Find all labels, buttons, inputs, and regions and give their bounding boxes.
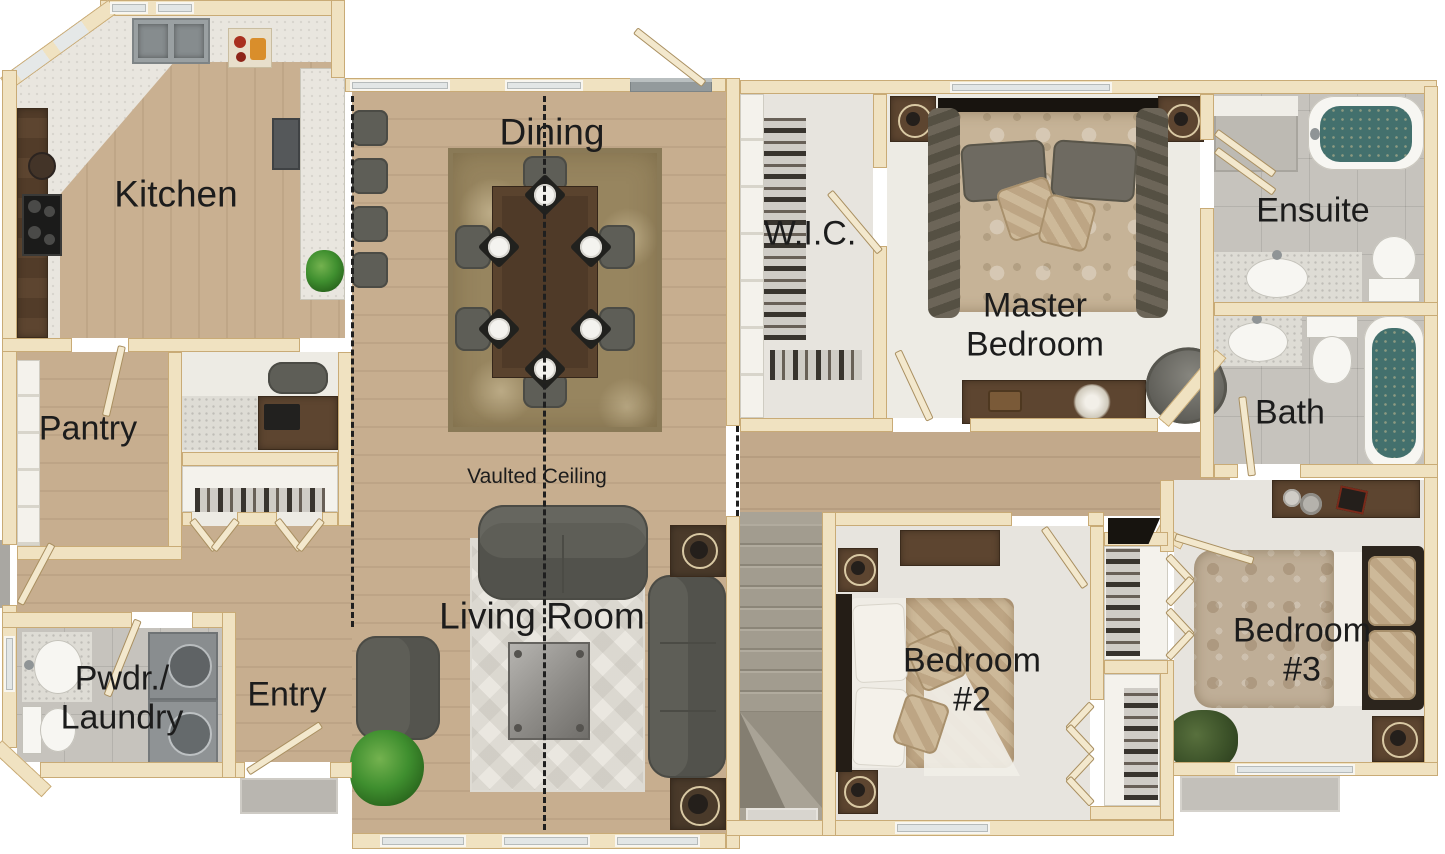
bed-drape: [1136, 108, 1168, 318]
window: [895, 822, 990, 834]
bar-stool: [352, 252, 388, 288]
sofa: [648, 575, 726, 778]
vaulted-ceiling-line: [543, 96, 546, 830]
room-label-kitchen: Kitchen: [114, 174, 237, 217]
room-label-dining: Dining: [500, 112, 605, 155]
sofa-cushion-line: [660, 710, 716, 712]
speaker-cone: [851, 783, 865, 797]
speaker-cone: [851, 561, 865, 575]
room-label-bath: Bath: [1255, 393, 1325, 432]
bedroom-hall-floor: [740, 432, 1230, 516]
window: [950, 82, 1112, 93]
wall: [237, 512, 277, 526]
burner: [44, 234, 55, 245]
window: [505, 80, 583, 91]
coat-closet-clothes: [195, 488, 325, 512]
burner: [28, 200, 41, 213]
bar-stool: [352, 158, 388, 194]
food-item: [234, 36, 246, 48]
dresser-plate: [1300, 493, 1322, 515]
room-label-pantry: Pantry: [39, 409, 137, 448]
pillow: [1050, 139, 1138, 203]
vaulted-ceiling-line: [736, 426, 739, 516]
wall: [970, 418, 1158, 432]
wall: [1200, 208, 1214, 478]
window: [110, 2, 148, 14]
wall: [1424, 86, 1438, 770]
speaker-cone: [906, 112, 920, 126]
wall: [1200, 94, 1214, 140]
faucet: [1272, 250, 1282, 260]
wall: [40, 762, 245, 778]
record: [688, 794, 708, 814]
ensuite-toilet-bowl: [1372, 236, 1416, 282]
wall: [2, 70, 17, 545]
wall: [330, 762, 352, 778]
wall: [726, 516, 740, 849]
ensuite-sink: [1246, 258, 1308, 298]
table-leg: [514, 724, 522, 732]
bar-stool: [352, 206, 388, 242]
wall: [873, 246, 887, 426]
wall: [873, 94, 887, 168]
room-label-pwdr-laundry: Pwdr./Laundry: [61, 660, 184, 739]
room-label-ensuite: Ensuite: [1256, 191, 1369, 230]
table-leg: [514, 650, 522, 658]
plate: [488, 236, 510, 258]
room-label-living-room: Living Room: [439, 596, 645, 639]
wall-oven: [272, 118, 300, 170]
wall: [128, 338, 300, 352]
wall: [822, 512, 1012, 526]
wall: [1214, 302, 1438, 316]
bath-toilet-bowl: [1312, 336, 1352, 384]
bedroom3-stoop: [1180, 776, 1340, 812]
window: [4, 636, 15, 692]
wall: [740, 418, 893, 432]
basket: [28, 152, 56, 180]
bedroom2-closet-clothes: [1124, 688, 1158, 800]
wall: [1088, 512, 1104, 526]
side-door-stoop: [0, 540, 10, 608]
bedroom2-dresser: [900, 530, 1000, 566]
tub-faucet: [1310, 128, 1320, 140]
wall: [1300, 464, 1438, 478]
ensuite-toilet-tank: [1368, 278, 1420, 302]
room-label-bedroom-2: Bedroom#2: [903, 642, 1041, 721]
sink-basin: [174, 24, 204, 58]
window: [1235, 764, 1355, 775]
burner: [28, 226, 41, 239]
bath-tub-water: [1372, 328, 1416, 458]
desk-counter: [182, 396, 258, 450]
wall: [1104, 660, 1168, 674]
vaulted-ceiling-line: [351, 96, 354, 627]
dresser-plate: [1283, 489, 1301, 507]
window: [156, 2, 194, 14]
desk-items: [988, 390, 1022, 412]
room-label-bedroom-3: Bedroom#3: [1233, 612, 1371, 691]
wic-shelving: [740, 94, 764, 418]
armchair: [356, 636, 440, 740]
wall: [1214, 464, 1238, 478]
plate: [488, 318, 510, 340]
pantry-shelves: [17, 360, 40, 546]
sofa-cushion-line: [660, 642, 716, 644]
entry-porch: [240, 778, 338, 814]
wic-clothes: [770, 350, 862, 380]
bedroom3-closet-clothes: [1106, 548, 1140, 656]
bed-drape: [928, 108, 960, 318]
window: [615, 835, 700, 847]
wall: [168, 352, 182, 560]
window: [380, 835, 466, 847]
pillow: [1368, 556, 1416, 626]
bath-toilet-tank: [1306, 316, 1358, 338]
wall: [2, 338, 72, 352]
wall: [726, 78, 740, 426]
laptop: [264, 404, 300, 430]
food-item: [236, 52, 246, 62]
room-label-master-bedroom: MasterBedroom: [966, 287, 1104, 366]
wall: [222, 612, 236, 778]
wall: [2, 612, 132, 628]
loveseat-cushion-line: [562, 535, 564, 593]
window: [502, 835, 590, 847]
floor-plan: Kitchen Dining Pantry W.I.C. MasterBedro…: [0, 0, 1445, 854]
window: [350, 80, 450, 91]
table-leg: [576, 650, 584, 658]
room-label-entry: Entry: [247, 675, 326, 714]
faucet: [24, 660, 34, 670]
wall: [331, 0, 345, 78]
shower-ledge: [1214, 96, 1298, 116]
speaker-cone: [1390, 730, 1406, 746]
wall: [1090, 526, 1104, 700]
ensuite-tub-water: [1320, 106, 1412, 162]
bedroom2-headboard: [836, 594, 852, 772]
pillow: [852, 603, 908, 684]
speaker-cone: [1174, 112, 1188, 126]
stairs-treads: [740, 524, 822, 712]
vaulted-ceiling-note: Vaulted Ceiling: [467, 465, 607, 489]
speaker-cone: [690, 541, 708, 559]
plate: [580, 318, 602, 340]
burner: [44, 206, 55, 217]
toilet-tank: [22, 706, 42, 754]
wall: [338, 352, 352, 526]
plate: [580, 236, 602, 258]
wall: [822, 512, 836, 836]
wall: [182, 452, 338, 466]
bath-sink: [1228, 322, 1288, 362]
sink-basin: [138, 24, 168, 58]
wall: [322, 512, 338, 526]
table-leg: [576, 724, 584, 732]
food-item: [250, 38, 266, 60]
desk-chair: [268, 362, 328, 394]
bar-stool: [352, 110, 388, 146]
wall: [1160, 660, 1174, 820]
pillow: [1368, 630, 1416, 700]
room-label-wic: W.I.C.: [764, 214, 857, 253]
desk-flowers: [1072, 384, 1112, 420]
